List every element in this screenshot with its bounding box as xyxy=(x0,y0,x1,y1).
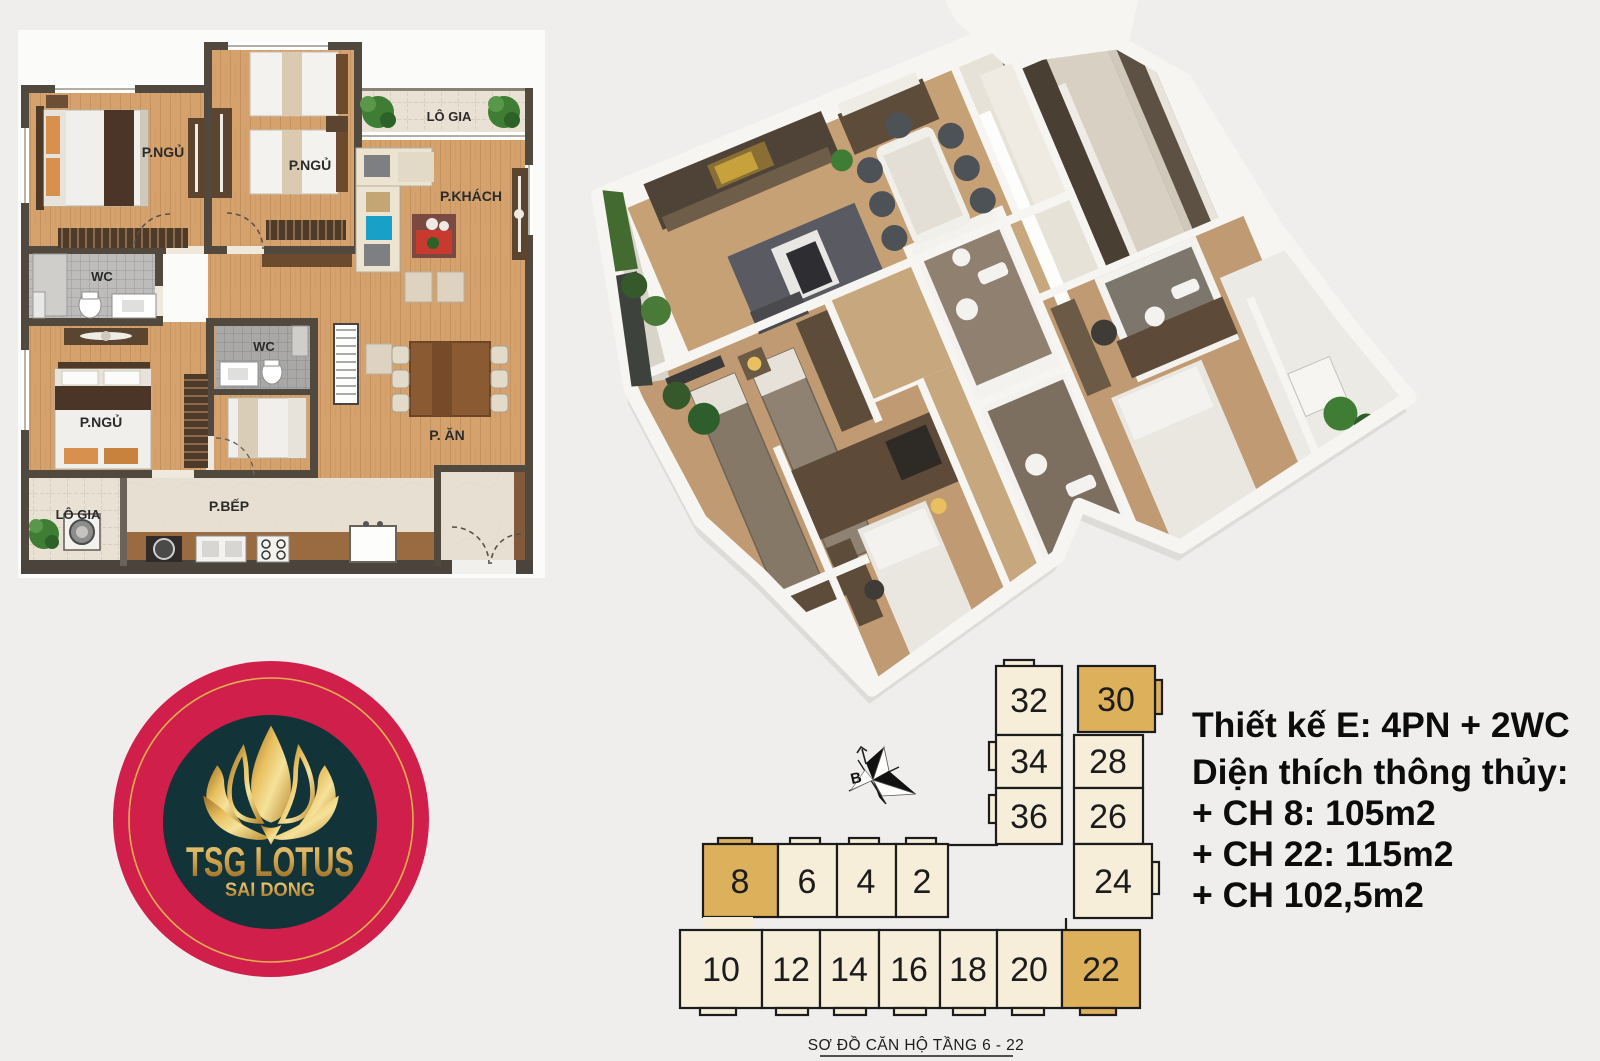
svg-text:P.NGỦ: P.NGỦ xyxy=(80,413,123,430)
svg-text:4: 4 xyxy=(857,863,876,901)
svg-text:8: 8 xyxy=(731,863,750,901)
svg-text:14: 14 xyxy=(830,951,868,989)
svg-text:WC: WC xyxy=(253,339,275,354)
svg-text:32: 32 xyxy=(1010,682,1048,720)
svg-text:10: 10 xyxy=(702,951,740,989)
svg-text:WC: WC xyxy=(91,269,113,284)
svg-text:P.BẾP: P.BẾP xyxy=(209,498,249,514)
svg-text:P.NGỦ: P.NGỦ xyxy=(289,156,332,173)
svg-text:Diện thích thông thủy:: Diện thích thông thủy: xyxy=(1192,752,1569,792)
svg-text:36: 36 xyxy=(1010,798,1048,836)
svg-text:+ CH 8: 105m2: + CH 8: 105m2 xyxy=(1192,793,1436,833)
svg-text:TSG LOTUS: TSG LOTUS xyxy=(186,838,354,885)
svg-text:22: 22 xyxy=(1082,951,1120,989)
svg-text:SƠ ĐỒ CĂN HỘ TẦNG 6 - 22: SƠ ĐỒ CĂN HỘ TẦNG 6 - 22 xyxy=(808,1036,1024,1054)
svg-text:2: 2 xyxy=(913,863,932,901)
svg-text:28: 28 xyxy=(1089,743,1127,781)
svg-text:24: 24 xyxy=(1094,863,1132,901)
svg-text:12: 12 xyxy=(772,951,810,989)
svg-text:6: 6 xyxy=(798,863,817,901)
svg-text:LÔ GIA: LÔ GIA xyxy=(56,507,101,522)
svg-text:34: 34 xyxy=(1010,743,1048,781)
svg-text:LÔ GIA: LÔ GIA xyxy=(427,109,472,124)
svg-text:+ CH 22: 115m2: + CH 22: 115m2 xyxy=(1192,834,1453,874)
svg-text:P.KHÁCH: P.KHÁCH xyxy=(440,188,502,204)
svg-text:SAI DONG: SAI DONG xyxy=(225,880,315,901)
svg-text:20: 20 xyxy=(1010,951,1048,989)
svg-text:P. ĂN: P. ĂN xyxy=(429,427,465,443)
svg-text:Thiết kế E: 4PN + 2WC: Thiết kế E: 4PN + 2WC xyxy=(1192,705,1570,745)
svg-text:18: 18 xyxy=(949,951,987,989)
svg-text:16: 16 xyxy=(890,951,928,989)
svg-text:26: 26 xyxy=(1089,798,1127,836)
svg-text:P.NGỦ: P.NGỦ xyxy=(142,143,185,160)
svg-text:+ CH 102,5m2: + CH 102,5m2 xyxy=(1192,875,1424,915)
svg-text:30: 30 xyxy=(1097,681,1135,719)
